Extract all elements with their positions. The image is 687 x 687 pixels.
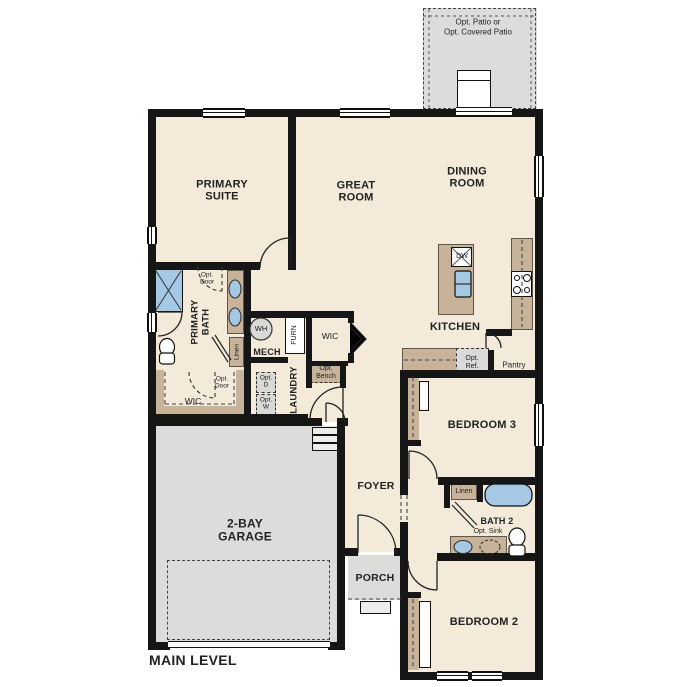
patio-sliding-door (456, 107, 512, 116)
opt-sink-label: Opt. Sink (468, 528, 508, 536)
bedroom3-label: BEDROOM 3 (437, 419, 527, 431)
floor-foyer (345, 370, 408, 552)
bedroom2-closet (407, 597, 419, 670)
water-heater-label: WH (251, 325, 271, 333)
wall-linen-tub (477, 482, 483, 502)
wall-suite-great (288, 109, 296, 270)
opt-bench-label: Opt. Bench (312, 365, 340, 381)
wall-porch-front-a (345, 548, 358, 556)
pantry-label: Pantry (494, 362, 534, 371)
opt-door-bath-label: Opt. Door (194, 272, 220, 287)
opt-washer-label: Opt. W (257, 397, 275, 412)
wall-bath-right (244, 262, 251, 422)
porch-step (360, 601, 391, 614)
wic-primary-label: WIC (178, 397, 208, 407)
wall-kitchen-bottom (400, 370, 543, 378)
bedroom3-closet (407, 375, 419, 442)
primary-linen-label: Linen (233, 339, 240, 365)
wall-right (535, 117, 543, 680)
mech-label: MECH (247, 347, 287, 357)
window-primary-suite-left (147, 227, 157, 244)
wic-hall-label: WIC (315, 332, 345, 342)
kitchen-counter-bottom (402, 348, 457, 372)
wall-porch-front-b (394, 548, 408, 556)
window-primary-bath-left (147, 313, 157, 332)
window-bedroom3-right (534, 404, 544, 446)
stove-box (511, 271, 532, 297)
wall-linen-left (444, 480, 450, 508)
wall-garage-left (148, 418, 156, 650)
main-level-title: MAIN LEVEL (149, 653, 237, 669)
garage-label: 2-BAY GARAGE (213, 518, 277, 545)
bedroom3-closet-door (419, 381, 429, 411)
opt-patio-label-line1: Opt. Patio or (423, 19, 533, 28)
bath2-label: BATH 2 (472, 516, 522, 526)
opt-patio-label-line2: Opt. Covered Patio (423, 29, 533, 38)
primary-shower (154, 269, 183, 312)
wall-bed3-closet-stub (407, 440, 421, 446)
garage-dashed-area (167, 560, 330, 640)
wall-bath2-bottom (437, 553, 543, 561)
primary-suite-label: PRIMARY SUITE (189, 179, 255, 204)
opt-ref-label: Opt. Ref. (461, 355, 483, 371)
great-room-label: GREAT ROOM (332, 180, 380, 205)
opt-door-wic-label: Opt. Door (209, 376, 235, 391)
wall-mech-laundry (248, 357, 288, 363)
window-bedroom2-bottom-1 (437, 671, 468, 681)
wall-wic2-stub-top (348, 311, 354, 323)
foyer-label: FOYER (351, 481, 401, 493)
window-bedroom2-bottom-2 (472, 671, 502, 681)
garage-vehicle-door (168, 641, 330, 648)
wall-bath-wing-bottom (148, 414, 308, 422)
furnace-label: FURN (291, 320, 299, 350)
bedroom2-label: BEDROOM 2 (439, 616, 529, 628)
wall-bed2-closet-stub (405, 592, 421, 598)
hall-linen-label: Linen (451, 488, 477, 496)
window-dining-right (534, 156, 544, 197)
window-primary-suite-top (203, 108, 245, 118)
wall-bedroom3-bottom (438, 477, 543, 485)
wall-bench-right (340, 363, 346, 388)
dishwasher-label: DW (453, 253, 471, 261)
wall-wic2-stub-bottom (348, 353, 354, 363)
opt-dryer-label: Opt. D (257, 375, 275, 390)
wall-garage-right (337, 418, 345, 650)
kitchen-label: KITCHEN (420, 321, 490, 333)
porch-label: PORCH (350, 573, 400, 585)
wall-garage-bottom-a (148, 642, 170, 650)
primary-bath-label: PRIMARY BATH (190, 296, 211, 348)
wic-shelf-right (236, 370, 244, 416)
wall-mech-top (248, 311, 352, 318)
laundry-label: LAUNDRY (290, 363, 301, 417)
primary-vanity (227, 270, 244, 334)
wall-suite-bottom-b (288, 262, 296, 270)
dining-room-label: DINING ROOM (443, 166, 491, 191)
wall-hall-left-a (400, 370, 408, 495)
window-great-room-top (340, 108, 390, 118)
patio-fireplace-body (457, 80, 491, 108)
floor-plan-image: Opt. Patio or Opt. Covered Patio PRIMARY… (0, 0, 687, 687)
bedroom2-closet-door (419, 601, 431, 668)
